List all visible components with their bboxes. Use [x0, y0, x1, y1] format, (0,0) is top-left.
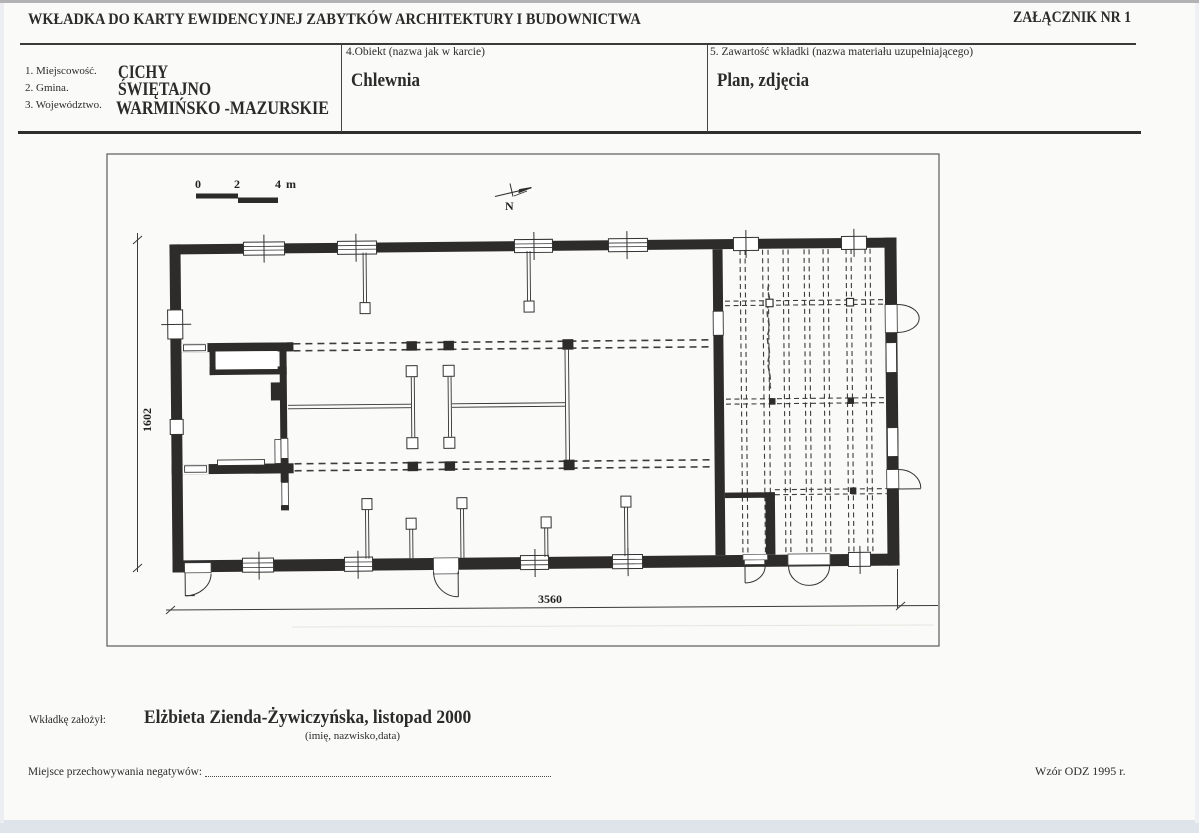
svg-text:0: 0	[195, 177, 201, 191]
svg-text:4: 4	[275, 177, 281, 191]
svg-text:m: m	[286, 177, 296, 191]
svg-text:1602: 1602	[140, 408, 154, 432]
svg-text:2: 2	[234, 177, 240, 191]
svg-text:3560: 3560	[538, 592, 562, 606]
svg-text:N: N	[505, 199, 514, 213]
